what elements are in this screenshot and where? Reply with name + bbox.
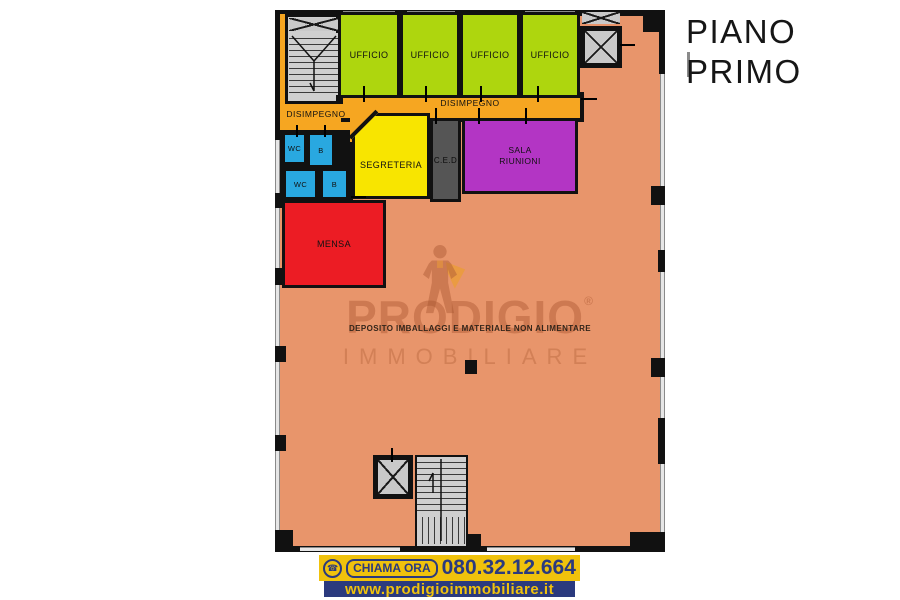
watermark-brand: PRODIGIO® xyxy=(305,290,635,344)
room-wc-top-label: WC xyxy=(288,144,301,153)
room-mensa: MENSA xyxy=(282,200,386,288)
door-tick-wc-2 xyxy=(324,125,326,137)
page-title-line2: PRIMO xyxy=(686,52,896,92)
room-bath-bottom: B xyxy=(321,169,348,199)
room-ced: C.E.D xyxy=(430,118,461,202)
room-ufficio-1-label: UFFICIO xyxy=(350,50,389,60)
room-ced-label: C.E.D xyxy=(434,156,457,165)
call-banner: ☎ CHIAMA ORA 080.32.12.664 xyxy=(319,555,580,581)
room-bath-top-label: B xyxy=(318,146,323,155)
page-title-line1: PIANO xyxy=(686,12,896,52)
elevator-shaft-hatch-icon xyxy=(582,12,620,24)
wall-right-top xyxy=(659,10,665,74)
room-wc-bottom-label: WC xyxy=(294,180,307,189)
door-tick-stairs-bottom xyxy=(391,448,393,462)
room-mensa-label: MENSA xyxy=(317,239,351,249)
page-title: PIANO PRIMO xyxy=(686,12,896,92)
staircase-top xyxy=(285,14,343,104)
door-tick-ufficio-1 xyxy=(363,86,365,102)
pillar-interior xyxy=(465,360,477,374)
pillar-right-1 xyxy=(651,186,665,205)
room-sala-riunioni-label: SALA RIUNIONI xyxy=(493,145,548,168)
room-ufficio-3-label: UFFICIO xyxy=(471,50,510,60)
room-ufficio-4: UFFICIO xyxy=(520,12,580,98)
room-ufficio-2-label: UFFICIO xyxy=(411,50,450,60)
door-tick-ufficio-4 xyxy=(537,86,539,102)
website-banner: www.prodigioimmobiliare.it xyxy=(324,581,575,597)
room-ufficio-1: UFFICIO xyxy=(338,12,400,98)
stairs-shaft-hatch-icon xyxy=(289,18,339,31)
door-tick-elevator-top xyxy=(620,44,635,46)
call-now-label: CHIAMA ORA xyxy=(346,559,438,578)
room-ufficio-4-label: UFFICIO xyxy=(531,50,570,60)
pillar-left-3 xyxy=(275,346,286,362)
elevator-top-icon xyxy=(580,26,622,68)
door-tick-sala-1 xyxy=(478,108,480,124)
wall-right-window xyxy=(660,10,665,552)
window-bottom-2 xyxy=(487,547,575,551)
stairs-bottom-direction-icon xyxy=(417,457,466,544)
phone-number: 080.32.12.664 xyxy=(442,556,576,580)
room-bath-bottom-label: B xyxy=(332,180,337,189)
registered-mark: ® xyxy=(584,294,594,308)
door-tick-sala-2 xyxy=(525,108,527,124)
room-bath-top: B xyxy=(308,133,334,167)
door-tick-wc-1 xyxy=(296,125,298,137)
door-tick-corridor-end xyxy=(581,98,597,100)
elevator-bottom-icon xyxy=(373,455,413,499)
website-url: www.prodigioimmobiliare.it xyxy=(345,581,554,598)
wall-corridor-end xyxy=(580,92,584,122)
door-tick-ufficio-2 xyxy=(425,86,427,102)
door-tick-ced xyxy=(435,108,437,124)
room-wc-top: WC xyxy=(283,133,306,164)
floor-plan-page: PRODIGIO® IMMOBILIARE DEPOSITO IMBALLAGG… xyxy=(0,0,900,600)
pillar-right-2 xyxy=(651,358,665,377)
wall-right-seg-2 xyxy=(658,418,665,464)
room-segreteria-label: SEGRETERIA xyxy=(360,160,422,170)
room-wc-bottom: WC xyxy=(284,169,317,199)
door-tick-mensa xyxy=(351,196,366,198)
room-disimpegno-corridor-label: DISIMPEGNO xyxy=(415,98,525,108)
window-bottom-1 xyxy=(300,547,400,551)
room-disimpegno-left-label: DISIMPEGNO xyxy=(279,109,353,119)
room-deposito-label: DEPOSITO IMBALLAGGI E MATERIALE NON ALIM… xyxy=(330,324,610,333)
door-tick-ufficio-3 xyxy=(480,86,482,102)
phone-icon: ☎ xyxy=(323,559,342,578)
floor-plan: PRODIGIO® IMMOBILIARE DEPOSITO IMBALLAGG… xyxy=(275,10,665,552)
room-ufficio-2: UFFICIO xyxy=(400,12,460,98)
wall-right-seg-1 xyxy=(658,250,665,272)
staircase-bottom xyxy=(415,455,468,546)
watermark-brand-text: PRODIGIO xyxy=(346,291,584,343)
pillar-left-4 xyxy=(275,435,286,451)
room-sala-riunioni: SALA RIUNIONI xyxy=(462,118,578,194)
stairs-direction-icon xyxy=(289,33,339,95)
room-ufficio-3: UFFICIO xyxy=(460,12,520,98)
